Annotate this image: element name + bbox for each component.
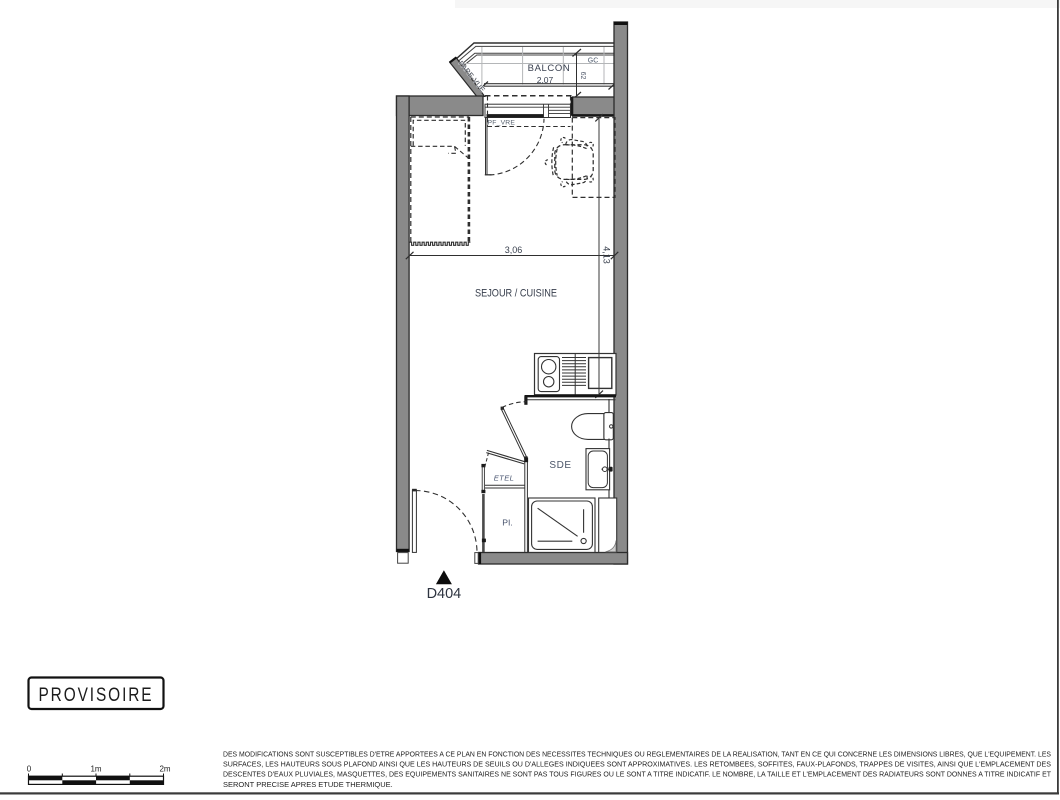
svg-text:SURFACES, LES HAUTEURS SOUS PL: SURFACES, LES HAUTEURS SOUS PLAFOND AINS… (223, 760, 1051, 769)
svg-text:SERONT PRECISE APRES ETUDE THE: SERONT PRECISE APRES ETUDE THERMIQUE. (223, 780, 393, 789)
svg-text:DES MODIFICATIONS SONT SUSCEPT: DES MODIFICATIONS SONT SUSCEPTIBLES D'ET… (223, 749, 1051, 758)
svg-text:DESCENTES D'EAUX PLUVIALES, MA: DESCENTES D'EAUX PLUVIALES, MASQUETTES, … (223, 770, 1051, 779)
